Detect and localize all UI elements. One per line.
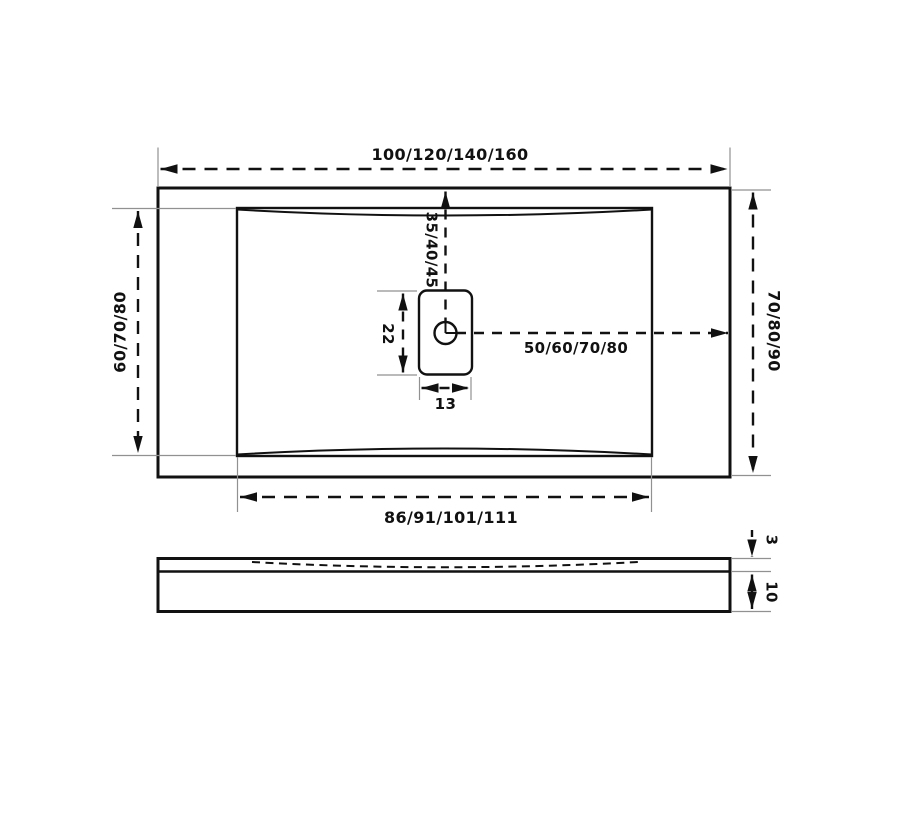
drain-offset-top-label: 35/40/45	[423, 212, 441, 289]
overall-depth-label: 70/80/90	[765, 290, 784, 372]
dimension-basin-width: 86/91/101/111	[238, 457, 652, 527]
drain-length-label: 22	[379, 323, 397, 345]
dimension-overall-depth: 70/80/90	[731, 190, 784, 476]
basin-floor-bottom-curve	[237, 449, 652, 455]
overall-width-label: 100/120/140/160	[371, 145, 528, 164]
dimension-drain-offset-right: 50/60/70/80	[456, 333, 728, 357]
top-view: 100/120/140/160 70/80/90 60/70/80 86/91/…	[111, 145, 784, 527]
dimension-overall-width: 100/120/140/160	[158, 145, 730, 187]
basin-width-label: 86/91/101/111	[384, 508, 518, 527]
shower-tray-dimension-drawing: 100/120/140/160 70/80/90 60/70/80 86/91/…	[0, 0, 908, 817]
dimension-drain-length: 22	[377, 291, 417, 375]
drain-width-label: 13	[435, 395, 457, 413]
base-height-label: 10	[763, 581, 781, 603]
dimension-base-height: 10	[752, 575, 781, 610]
rim-height-label: 3	[763, 535, 781, 546]
dimension-rim-height: 3	[752, 530, 781, 557]
dimension-drain-offset-top: 35/40/45	[423, 192, 446, 322]
drawing-svg: 100/120/140/160 70/80/90 60/70/80 86/91/…	[0, 0, 908, 817]
dimension-basin-depth: 60/70/80	[111, 209, 237, 456]
drain-offset-right-label: 50/60/70/80	[524, 339, 628, 357]
dimension-drain-width: 13	[420, 377, 472, 413]
profile-floor-slope-dashed-curve	[252, 562, 638, 567]
basin-depth-label: 60/70/80	[111, 291, 130, 373]
side-view: 3 10	[158, 530, 781, 612]
